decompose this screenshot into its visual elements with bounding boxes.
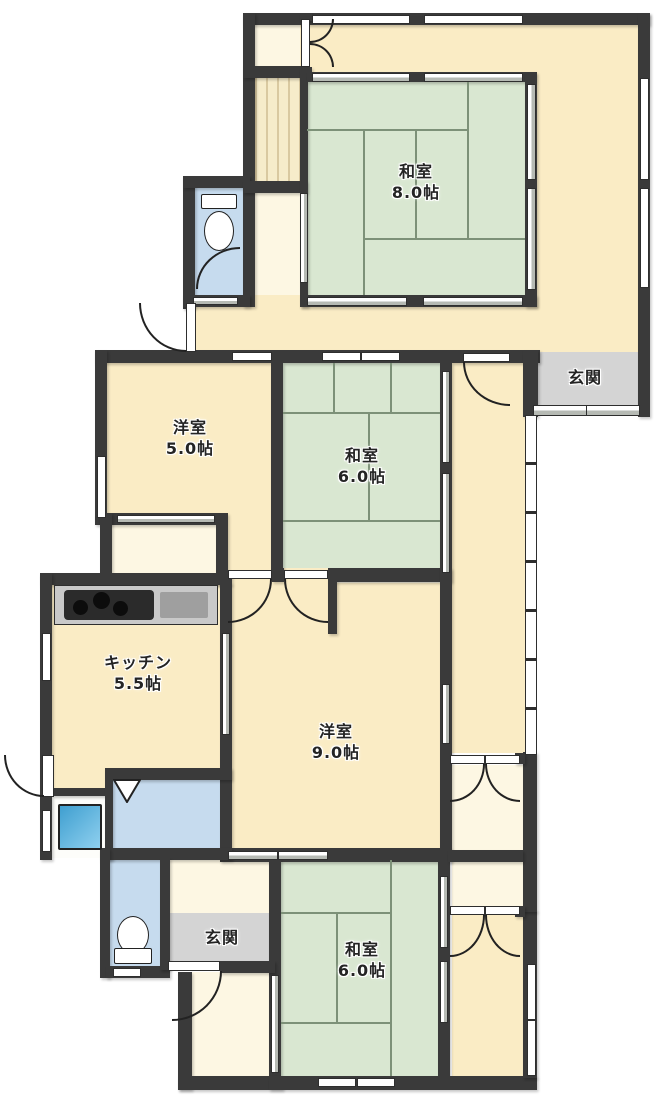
wall [328, 580, 337, 634]
door-leaf [186, 303, 196, 352]
closet-top-left-floor [255, 25, 300, 66]
genkan-bottom-hall-floor [170, 860, 269, 913]
room-name: キッチン [72, 653, 204, 674]
room-size: 9.0帖 [276, 743, 396, 764]
sliding-door [424, 73, 523, 82]
sliding-door [117, 515, 215, 523]
room-name: 和室 [302, 940, 422, 961]
window [640, 188, 649, 288]
window [97, 456, 106, 518]
wall [243, 13, 255, 307]
east-corridor-floor [452, 363, 525, 753]
window [322, 352, 361, 361]
tatami-line [363, 238, 525, 240]
tatami-line [467, 82, 469, 240]
wall [160, 858, 170, 970]
wall [272, 568, 284, 582]
window [527, 1020, 536, 1076]
wall [183, 176, 195, 309]
upper-west-corridor-floor [186, 307, 256, 352]
window [318, 1078, 356, 1087]
window [357, 1078, 395, 1087]
door-leaf [463, 353, 510, 362]
stove-burner-icon [93, 592, 110, 609]
closet-2-floor [112, 525, 216, 573]
room-label-kitchen: キッチン 5.5帖 [72, 653, 204, 695]
window [424, 15, 523, 24]
wall [448, 850, 523, 862]
sliding-door [527, 188, 536, 290]
window [361, 352, 400, 361]
folding-door-icon [113, 779, 141, 803]
tatami-line [333, 363, 335, 414]
wall [328, 568, 452, 582]
wall [269, 1076, 537, 1090]
wall [40, 573, 232, 585]
kitchen-nook-floor [52, 770, 105, 790]
room-label-washitsu-8: 和室 8.0帖 [356, 162, 476, 204]
sliding-door [307, 297, 407, 306]
entrance-sliding-door [533, 405, 587, 416]
room-size: 6.0帖 [302, 961, 422, 982]
room-size: 5.0帖 [130, 439, 250, 460]
room-label-washitsu-6-mid: 和室 6.0帖 [302, 446, 422, 488]
closet-door-leaf [450, 906, 485, 915]
toilet-icon [204, 211, 234, 251]
sliding-door [442, 684, 450, 744]
bathtub-icon [58, 804, 102, 850]
sliding-door [312, 73, 410, 82]
sliding-door [527, 84, 536, 180]
window [42, 810, 51, 852]
room-size: 6.0帖 [302, 467, 422, 488]
window [527, 964, 536, 1020]
room-label-genkan-top: 玄関 [535, 368, 635, 389]
wall [178, 1076, 283, 1090]
sliding-door [228, 851, 278, 860]
tatami-line [390, 363, 392, 414]
sliding-door [300, 193, 308, 283]
window [640, 78, 649, 180]
room-name: 玄関 [535, 368, 635, 389]
wall [183, 176, 250, 188]
room-size: 5.5帖 [72, 674, 204, 695]
sliding-door [278, 851, 328, 860]
door-leaf [301, 19, 310, 67]
room-name: 和室 [356, 162, 476, 183]
room-name: 玄関 [172, 928, 272, 949]
wall [243, 181, 307, 193]
sliding-door [440, 961, 448, 1023]
wall [100, 848, 110, 978]
wall [523, 752, 537, 912]
window [113, 968, 141, 977]
sliding-door [193, 297, 238, 305]
floor-plan: 和室 8.0帖 玄関 洋室 5.0帖 和室 6.0帖 キッチン 5.5帖 洋室 … [0, 0, 659, 1100]
tatami-line [307, 129, 467, 131]
room-name: 洋室 [276, 722, 396, 743]
sliding-door [442, 473, 450, 573]
stove-burner-icon [73, 600, 88, 615]
anteroom-floor [255, 193, 300, 295]
sliding-door [440, 876, 448, 948]
toilet-icon [201, 194, 237, 209]
tatami-line [283, 520, 440, 522]
sink-icon [160, 592, 208, 618]
closet-door-leaf [485, 755, 520, 764]
tatami-line [283, 412, 440, 414]
tatami-line [363, 129, 365, 295]
wall [243, 66, 307, 78]
toilet-icon [114, 948, 152, 964]
room-name: 和室 [302, 446, 422, 467]
room-label-yoshitsu-9: 洋室 9.0帖 [276, 722, 396, 764]
room-label-genkan-bottom: 玄関 [172, 928, 272, 949]
tatami-line [281, 1022, 392, 1024]
window [42, 633, 51, 681]
door-leaf [228, 570, 272, 579]
closet-door-leaf [450, 755, 485, 764]
room-label-yoshitsu-5: 洋室 5.0帖 [130, 418, 250, 460]
closet-door-leaf [485, 906, 520, 915]
entrance-door-leaf [168, 961, 220, 971]
storage-b-floor [452, 862, 523, 908]
sliding-door [423, 297, 523, 306]
door-leaf [284, 570, 328, 579]
entrance-sliding-door [586, 405, 640, 416]
door-arc [139, 303, 186, 352]
stove-burner-icon [113, 601, 128, 616]
sliding-door [222, 633, 230, 735]
wood-veranda-floor [255, 78, 300, 181]
room-size: 8.0帖 [356, 183, 476, 204]
door-arc [4, 755, 44, 797]
sliding-door [442, 371, 450, 463]
room-name: 洋室 [130, 418, 250, 439]
wall [271, 363, 283, 573]
wall [52, 788, 110, 796]
room-label-washitsu-6-bottom: 和室 6.0帖 [302, 940, 422, 982]
wall [220, 961, 275, 973]
window-strip [525, 415, 537, 755]
sliding-door [271, 975, 279, 1073]
door-opening [232, 352, 272, 361]
